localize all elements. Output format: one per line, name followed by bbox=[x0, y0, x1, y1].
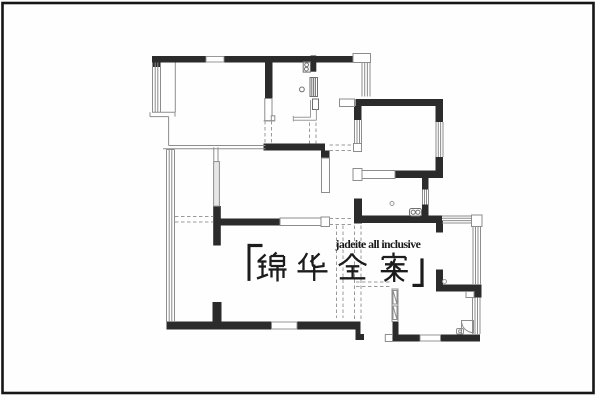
svg-text:jadeite all inclusive: jadeite all inclusive bbox=[335, 237, 421, 251]
